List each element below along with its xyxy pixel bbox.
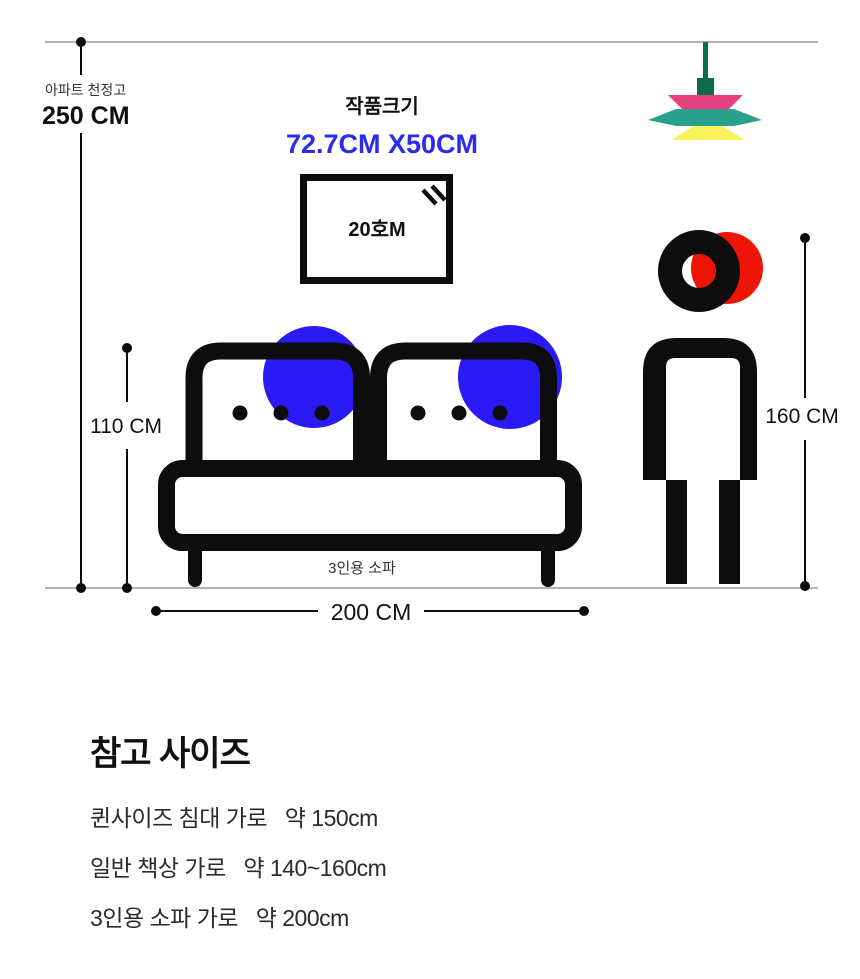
sofa-type-label: 3인용 소파 xyxy=(328,560,396,577)
sofa-height-label: 110 CM xyxy=(90,415,162,438)
person-height-label: 160 CM xyxy=(765,405,839,428)
person-leg-left xyxy=(666,480,687,584)
reference-item-bed: 퀸사이즈 침대 가로 약 150cm xyxy=(90,803,790,853)
canvas-size-label: 20호M xyxy=(348,218,405,241)
artwork-size-value: 72.7CM X50CM xyxy=(286,129,478,159)
measure-dot xyxy=(76,583,86,593)
pendant-lamp-icon xyxy=(648,42,762,140)
measure-dot xyxy=(122,583,132,593)
size-comparison-diagram: 아파트 천정고 250 CM 작품크기 72.7CM X50CM 20호M xyxy=(0,0,860,660)
artwork-size-title: 작품크기 xyxy=(345,95,419,118)
ceiling-height-value: 250 CM xyxy=(42,102,130,130)
person-leg-right xyxy=(719,480,740,584)
reference-heading: 참고 사이즈 xyxy=(90,726,790,775)
ceiling-height-label: 아파트 천정고 xyxy=(45,82,126,98)
reference-item-sofa: 3인용 소파 가로 약 200cm xyxy=(90,903,790,953)
sofa-icon xyxy=(167,325,574,580)
measurement-sofa-height xyxy=(122,343,132,593)
reference-item-desk: 일반 책상 가로 약 140~160cm xyxy=(90,853,790,903)
sofa-seat xyxy=(167,469,574,543)
person-icon xyxy=(643,232,763,584)
measure-dot xyxy=(579,606,589,616)
measure-dot xyxy=(800,581,810,591)
reference-sizes-section: 참고 사이즈 퀸사이즈 침대 가로 약 150cm 일반 책상 가로 약 140… xyxy=(90,726,790,953)
sofa-width-label: 200 CM xyxy=(331,599,412,625)
artwork-frame: 20호M xyxy=(304,178,450,281)
person-torso xyxy=(643,338,757,480)
size-guide-page: 아파트 천정고 250 CM 작품크기 72.7CM X50CM 20호M xyxy=(0,0,860,979)
